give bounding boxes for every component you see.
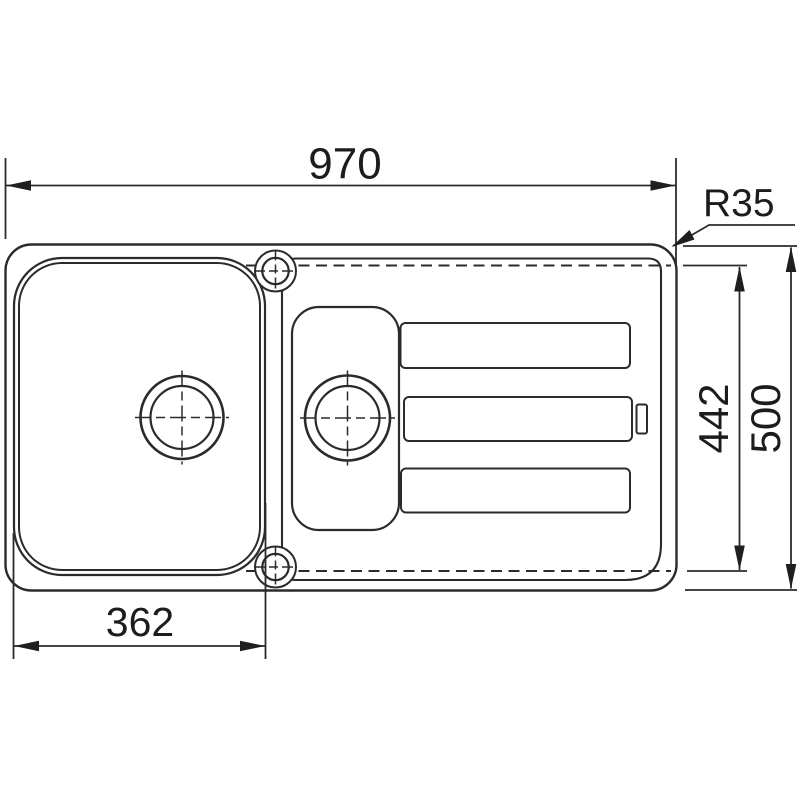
bowl-width-label: 362 (106, 599, 174, 645)
overall-depth-label: 500 (742, 383, 789, 453)
leader-arrow-icon (672, 230, 695, 247)
inner-depth-label: 442 (690, 383, 737, 453)
arrow-left-icon (14, 641, 39, 652)
drain-half-bowl (300, 371, 395, 466)
arrow-down-icon (786, 564, 797, 589)
arrow-down-icon (734, 546, 745, 571)
corner-radius-label: R35 (703, 182, 775, 225)
dimension-inner-depth: 442 (683, 266, 747, 572)
arrow-right-icon (651, 180, 676, 191)
technical-drawing: 970 R35 442 500 (0, 0, 800, 800)
drain-main-bowl (135, 371, 229, 465)
groove-notch (637, 405, 648, 434)
arrow-right-icon (240, 641, 265, 652)
dimension-bowl-width: 362 (14, 503, 266, 659)
arrow-up-icon (734, 267, 745, 292)
drainer-grooves (401, 323, 648, 513)
sink-drawing-svg: 970 R35 442 500 (0, 0, 800, 800)
dimension-corner-radius: R35 (672, 182, 796, 247)
arrow-left-icon (6, 180, 31, 191)
arrow-up-icon (786, 247, 797, 272)
dimension-overall-width: 970 (6, 140, 677, 267)
overall-width-label: 970 (308, 140, 381, 189)
